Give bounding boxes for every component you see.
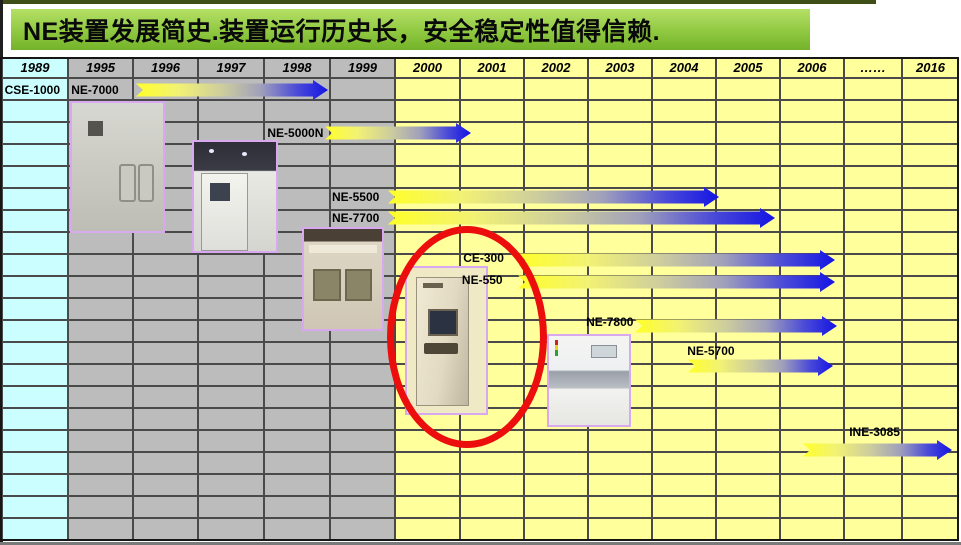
grid-cell bbox=[198, 254, 264, 276]
grid-cell bbox=[844, 144, 902, 166]
grid-cell bbox=[133, 496, 198, 518]
grid-cell bbox=[524, 166, 588, 188]
grid-cell bbox=[716, 430, 780, 452]
grid-cell bbox=[198, 452, 264, 474]
grid-cell bbox=[330, 144, 395, 166]
grid-cell bbox=[2, 452, 68, 474]
grid-cell bbox=[902, 298, 959, 320]
grid-cell bbox=[68, 320, 133, 342]
grid-cell bbox=[68, 254, 133, 276]
grid-cell bbox=[902, 342, 959, 364]
grid-cell bbox=[395, 452, 460, 474]
grid-cell bbox=[902, 122, 959, 144]
year-header-2006: 2006 bbox=[780, 57, 844, 78]
ne-7000-machine-photo bbox=[70, 101, 165, 233]
grid-cell bbox=[588, 78, 652, 100]
grid-cell bbox=[902, 100, 959, 122]
grid-cell bbox=[2, 298, 68, 320]
grid-cell bbox=[460, 518, 524, 540]
grid-cell bbox=[716, 386, 780, 408]
ne-7700-machine-photo bbox=[302, 227, 384, 331]
top-stripe bbox=[0, 0, 876, 4]
grid-cell bbox=[524, 100, 588, 122]
grid-cell bbox=[844, 496, 902, 518]
timeline-arrow-NE-5500 bbox=[388, 187, 719, 207]
grid-cell bbox=[395, 100, 460, 122]
grid-cell bbox=[133, 452, 198, 474]
grid-cell bbox=[524, 496, 588, 518]
grid-cell bbox=[68, 474, 133, 496]
grid-cell bbox=[395, 518, 460, 540]
grid-cell bbox=[652, 144, 716, 166]
grid-cell bbox=[902, 386, 959, 408]
grid-cell bbox=[652, 78, 716, 100]
year-header-2002: 2002 bbox=[524, 57, 588, 78]
grid-cell bbox=[844, 518, 902, 540]
grid-cell bbox=[844, 254, 902, 276]
grid-cell bbox=[2, 496, 68, 518]
highlight-ellipse bbox=[387, 226, 547, 448]
grid-cell bbox=[902, 518, 959, 540]
timeline-arrow-NE-7000 bbox=[136, 80, 328, 100]
grid-cell bbox=[264, 386, 330, 408]
grid-cell bbox=[588, 430, 652, 452]
grid-cell bbox=[330, 78, 395, 100]
grid-cell bbox=[716, 408, 780, 430]
grid-cell bbox=[198, 276, 264, 298]
grid-cell bbox=[844, 276, 902, 298]
grid-cell bbox=[198, 364, 264, 386]
grid-cell bbox=[330, 474, 395, 496]
grid-cell bbox=[780, 122, 844, 144]
grid-cell bbox=[588, 122, 652, 144]
grid-cell bbox=[395, 496, 460, 518]
grid-cell bbox=[2, 144, 68, 166]
grid-cell bbox=[68, 452, 133, 474]
grid-cell bbox=[652, 430, 716, 452]
grid-cell bbox=[716, 122, 780, 144]
timeline-arrow-NE-5700 bbox=[688, 356, 833, 376]
grid-cell bbox=[133, 364, 198, 386]
grid-cell bbox=[780, 408, 844, 430]
grid-cell bbox=[652, 100, 716, 122]
grid-cell bbox=[330, 342, 395, 364]
grid-cell bbox=[2, 122, 68, 144]
grid-cell bbox=[133, 474, 198, 496]
grid-cell bbox=[844, 122, 902, 144]
timeline-arrow-NE-7700 bbox=[388, 208, 775, 228]
grid-cell bbox=[2, 320, 68, 342]
grid-cell bbox=[902, 78, 959, 100]
grid-cell bbox=[902, 232, 959, 254]
timeline-arrow-NE-5000N bbox=[325, 123, 471, 143]
grid-cell bbox=[2, 342, 68, 364]
title-bar: NE装置发展简史.装置运行历史长，安全稳定性值得信赖. bbox=[11, 9, 810, 50]
grid-cell bbox=[330, 430, 395, 452]
grid-cell bbox=[68, 276, 133, 298]
grid-cell bbox=[264, 518, 330, 540]
grid-cell bbox=[588, 474, 652, 496]
grid-cell bbox=[902, 320, 959, 342]
grid-cell bbox=[524, 452, 588, 474]
grid-cell bbox=[902, 210, 959, 232]
grid-cell bbox=[524, 144, 588, 166]
grid-cell bbox=[68, 386, 133, 408]
grid-cell bbox=[330, 100, 395, 122]
grid-cell bbox=[780, 474, 844, 496]
grid-cell bbox=[264, 100, 330, 122]
grid-cell bbox=[264, 474, 330, 496]
year-header-1997: 1997 bbox=[198, 57, 264, 78]
grid-cell bbox=[780, 188, 844, 210]
grid-cell bbox=[716, 188, 780, 210]
product-label-NE-7700: NE-7700 bbox=[332, 210, 379, 226]
grid-cell bbox=[198, 408, 264, 430]
grid-cell bbox=[133, 430, 198, 452]
grid-cell bbox=[2, 408, 68, 430]
grid-cell bbox=[844, 100, 902, 122]
grid-cell bbox=[844, 188, 902, 210]
year-header-2016: 2016 bbox=[902, 57, 959, 78]
product-label-NE-5500: NE-5500 bbox=[332, 189, 379, 205]
grid-cell bbox=[902, 188, 959, 210]
grid-cell bbox=[652, 408, 716, 430]
grid-cell bbox=[460, 144, 524, 166]
grid-cell bbox=[780, 166, 844, 188]
year-header-1995: 1995 bbox=[68, 57, 133, 78]
grid-cell bbox=[2, 254, 68, 276]
grid-cell bbox=[902, 474, 959, 496]
year-header-1989: 1989 bbox=[2, 57, 68, 78]
grid-cell bbox=[68, 430, 133, 452]
grid-cell bbox=[2, 100, 68, 122]
grid-cell bbox=[716, 518, 780, 540]
grid-cell bbox=[2, 474, 68, 496]
grid-cell bbox=[844, 166, 902, 188]
grid-cell bbox=[460, 78, 524, 100]
grid-cell bbox=[844, 342, 902, 364]
grid-cell bbox=[330, 166, 395, 188]
grid-cell bbox=[264, 496, 330, 518]
grid-cell bbox=[780, 496, 844, 518]
year-header-……: …… bbox=[844, 57, 902, 78]
grid-cell bbox=[330, 364, 395, 386]
year-header-1998: 1998 bbox=[264, 57, 330, 78]
grid-cell bbox=[524, 430, 588, 452]
grid-cell bbox=[133, 232, 198, 254]
grid-cell bbox=[2, 364, 68, 386]
product-label-NE-7000: NE-7000 bbox=[71, 82, 118, 98]
grid-cell bbox=[198, 496, 264, 518]
grid-cell bbox=[133, 320, 198, 342]
timeline-arrow-NE-550 bbox=[518, 272, 835, 292]
grid-cell bbox=[460, 166, 524, 188]
grid-cell bbox=[2, 166, 68, 188]
grid-cell bbox=[264, 342, 330, 364]
grid-cell bbox=[844, 298, 902, 320]
grid-cell bbox=[902, 254, 959, 276]
grid-cell bbox=[588, 518, 652, 540]
grid-cell bbox=[524, 474, 588, 496]
grid-cell bbox=[652, 496, 716, 518]
grid-cell bbox=[780, 78, 844, 100]
grid-cell bbox=[133, 276, 198, 298]
grid-cell bbox=[652, 386, 716, 408]
grid-cell bbox=[2, 210, 68, 232]
year-header-2001: 2001 bbox=[460, 57, 524, 78]
grid-cell bbox=[330, 496, 395, 518]
grid-cell bbox=[902, 496, 959, 518]
grid-cell bbox=[588, 144, 652, 166]
grid-cell bbox=[330, 408, 395, 430]
grid-cell bbox=[68, 298, 133, 320]
grid-cell bbox=[588, 100, 652, 122]
grid-cell bbox=[844, 474, 902, 496]
grid-cell bbox=[198, 430, 264, 452]
slide-title: NE装置发展简史.装置运行历史长，安全稳定性值得信赖. bbox=[23, 12, 660, 48]
grid-cell bbox=[780, 518, 844, 540]
grid-cell bbox=[460, 100, 524, 122]
ne-5000n-machine-photo bbox=[192, 140, 278, 253]
grid-cell bbox=[716, 496, 780, 518]
grid-cell bbox=[716, 452, 780, 474]
grid-cell bbox=[133, 342, 198, 364]
grid-cell bbox=[844, 320, 902, 342]
grid-cell bbox=[844, 364, 902, 386]
grid-cell bbox=[588, 452, 652, 474]
grid-cell bbox=[460, 474, 524, 496]
grid-cell bbox=[780, 210, 844, 232]
product-label-NE-5000N: NE-5000N bbox=[267, 125, 323, 141]
grid-cell bbox=[652, 122, 716, 144]
grid-cell bbox=[68, 232, 133, 254]
grid-cell bbox=[524, 518, 588, 540]
grid-cell bbox=[844, 210, 902, 232]
product-label-INE-3085: INE-3085 bbox=[849, 424, 900, 440]
grid-cell bbox=[780, 386, 844, 408]
product-label-NE-5700: NE-5700 bbox=[687, 343, 734, 359]
grid-cell bbox=[198, 100, 264, 122]
grid-cell bbox=[780, 144, 844, 166]
grid-cell bbox=[68, 496, 133, 518]
grid-cell bbox=[844, 78, 902, 100]
grid-cell bbox=[264, 408, 330, 430]
product-label-NE-7800: NE-7800 bbox=[586, 314, 633, 330]
grid-cell bbox=[716, 166, 780, 188]
grid-cell bbox=[264, 364, 330, 386]
grid-cell bbox=[652, 166, 716, 188]
grid-cell bbox=[460, 452, 524, 474]
grid-cell bbox=[902, 408, 959, 430]
grid-cell bbox=[716, 144, 780, 166]
grid-cell bbox=[524, 122, 588, 144]
grid-cell bbox=[460, 496, 524, 518]
grid-cell bbox=[133, 518, 198, 540]
grid-cell bbox=[395, 144, 460, 166]
grid-cell bbox=[652, 474, 716, 496]
grid-cell bbox=[844, 232, 902, 254]
grid-cell bbox=[902, 166, 959, 188]
grid-cell bbox=[68, 408, 133, 430]
grid-cell bbox=[716, 474, 780, 496]
grid-cell bbox=[2, 518, 68, 540]
grid-cell bbox=[902, 276, 959, 298]
timeline-arrow-INE-3085 bbox=[803, 440, 952, 460]
grid-cell bbox=[844, 386, 902, 408]
grid-cell bbox=[2, 430, 68, 452]
grid-cell bbox=[198, 474, 264, 496]
grid-cell bbox=[2, 386, 68, 408]
grid-cell bbox=[588, 166, 652, 188]
grid-cell bbox=[198, 320, 264, 342]
grid-cell bbox=[395, 78, 460, 100]
grid-cell bbox=[330, 386, 395, 408]
slide: NE装置发展简史.装置运行历史长，安全稳定性值得信赖. 198919951996… bbox=[0, 0, 961, 545]
ne-7800-machine-photo bbox=[547, 334, 631, 427]
grid-cell bbox=[133, 386, 198, 408]
grid-cell bbox=[198, 342, 264, 364]
grid-cell bbox=[330, 518, 395, 540]
grid-cell bbox=[652, 452, 716, 474]
year-header-1999: 1999 bbox=[330, 57, 395, 78]
grid-cell bbox=[780, 100, 844, 122]
grid-cell bbox=[588, 496, 652, 518]
grid-cell bbox=[2, 232, 68, 254]
grid-cell bbox=[2, 276, 68, 298]
grid-cell bbox=[198, 386, 264, 408]
grid-cell bbox=[2, 188, 68, 210]
grid-cell bbox=[133, 298, 198, 320]
grid-cell bbox=[716, 100, 780, 122]
grid-cell bbox=[68, 342, 133, 364]
grid-cell bbox=[395, 166, 460, 188]
grid-cell bbox=[133, 408, 198, 430]
grid-cell bbox=[264, 452, 330, 474]
timeline-arrow-CE-300 bbox=[518, 250, 835, 270]
grid-cell bbox=[198, 518, 264, 540]
year-header-2004: 2004 bbox=[652, 57, 716, 78]
grid-cell bbox=[652, 518, 716, 540]
grid-cell bbox=[133, 254, 198, 276]
grid-cell bbox=[198, 298, 264, 320]
grid-cell bbox=[68, 364, 133, 386]
grid-cell bbox=[68, 518, 133, 540]
grid-cell bbox=[395, 474, 460, 496]
grid-cell bbox=[330, 452, 395, 474]
grid-cell bbox=[716, 78, 780, 100]
grid-cell bbox=[524, 78, 588, 100]
year-header-2005: 2005 bbox=[716, 57, 780, 78]
year-header-2000: 2000 bbox=[395, 57, 460, 78]
year-header-1996: 1996 bbox=[133, 57, 198, 78]
grid-cell bbox=[902, 364, 959, 386]
timeline-arrow-NE-7800 bbox=[635, 316, 837, 336]
grid-cell bbox=[902, 144, 959, 166]
year-header-2003: 2003 bbox=[588, 57, 652, 78]
grid-cell bbox=[264, 430, 330, 452]
row-header-cse-1000: CSE-1000 bbox=[5, 82, 60, 98]
